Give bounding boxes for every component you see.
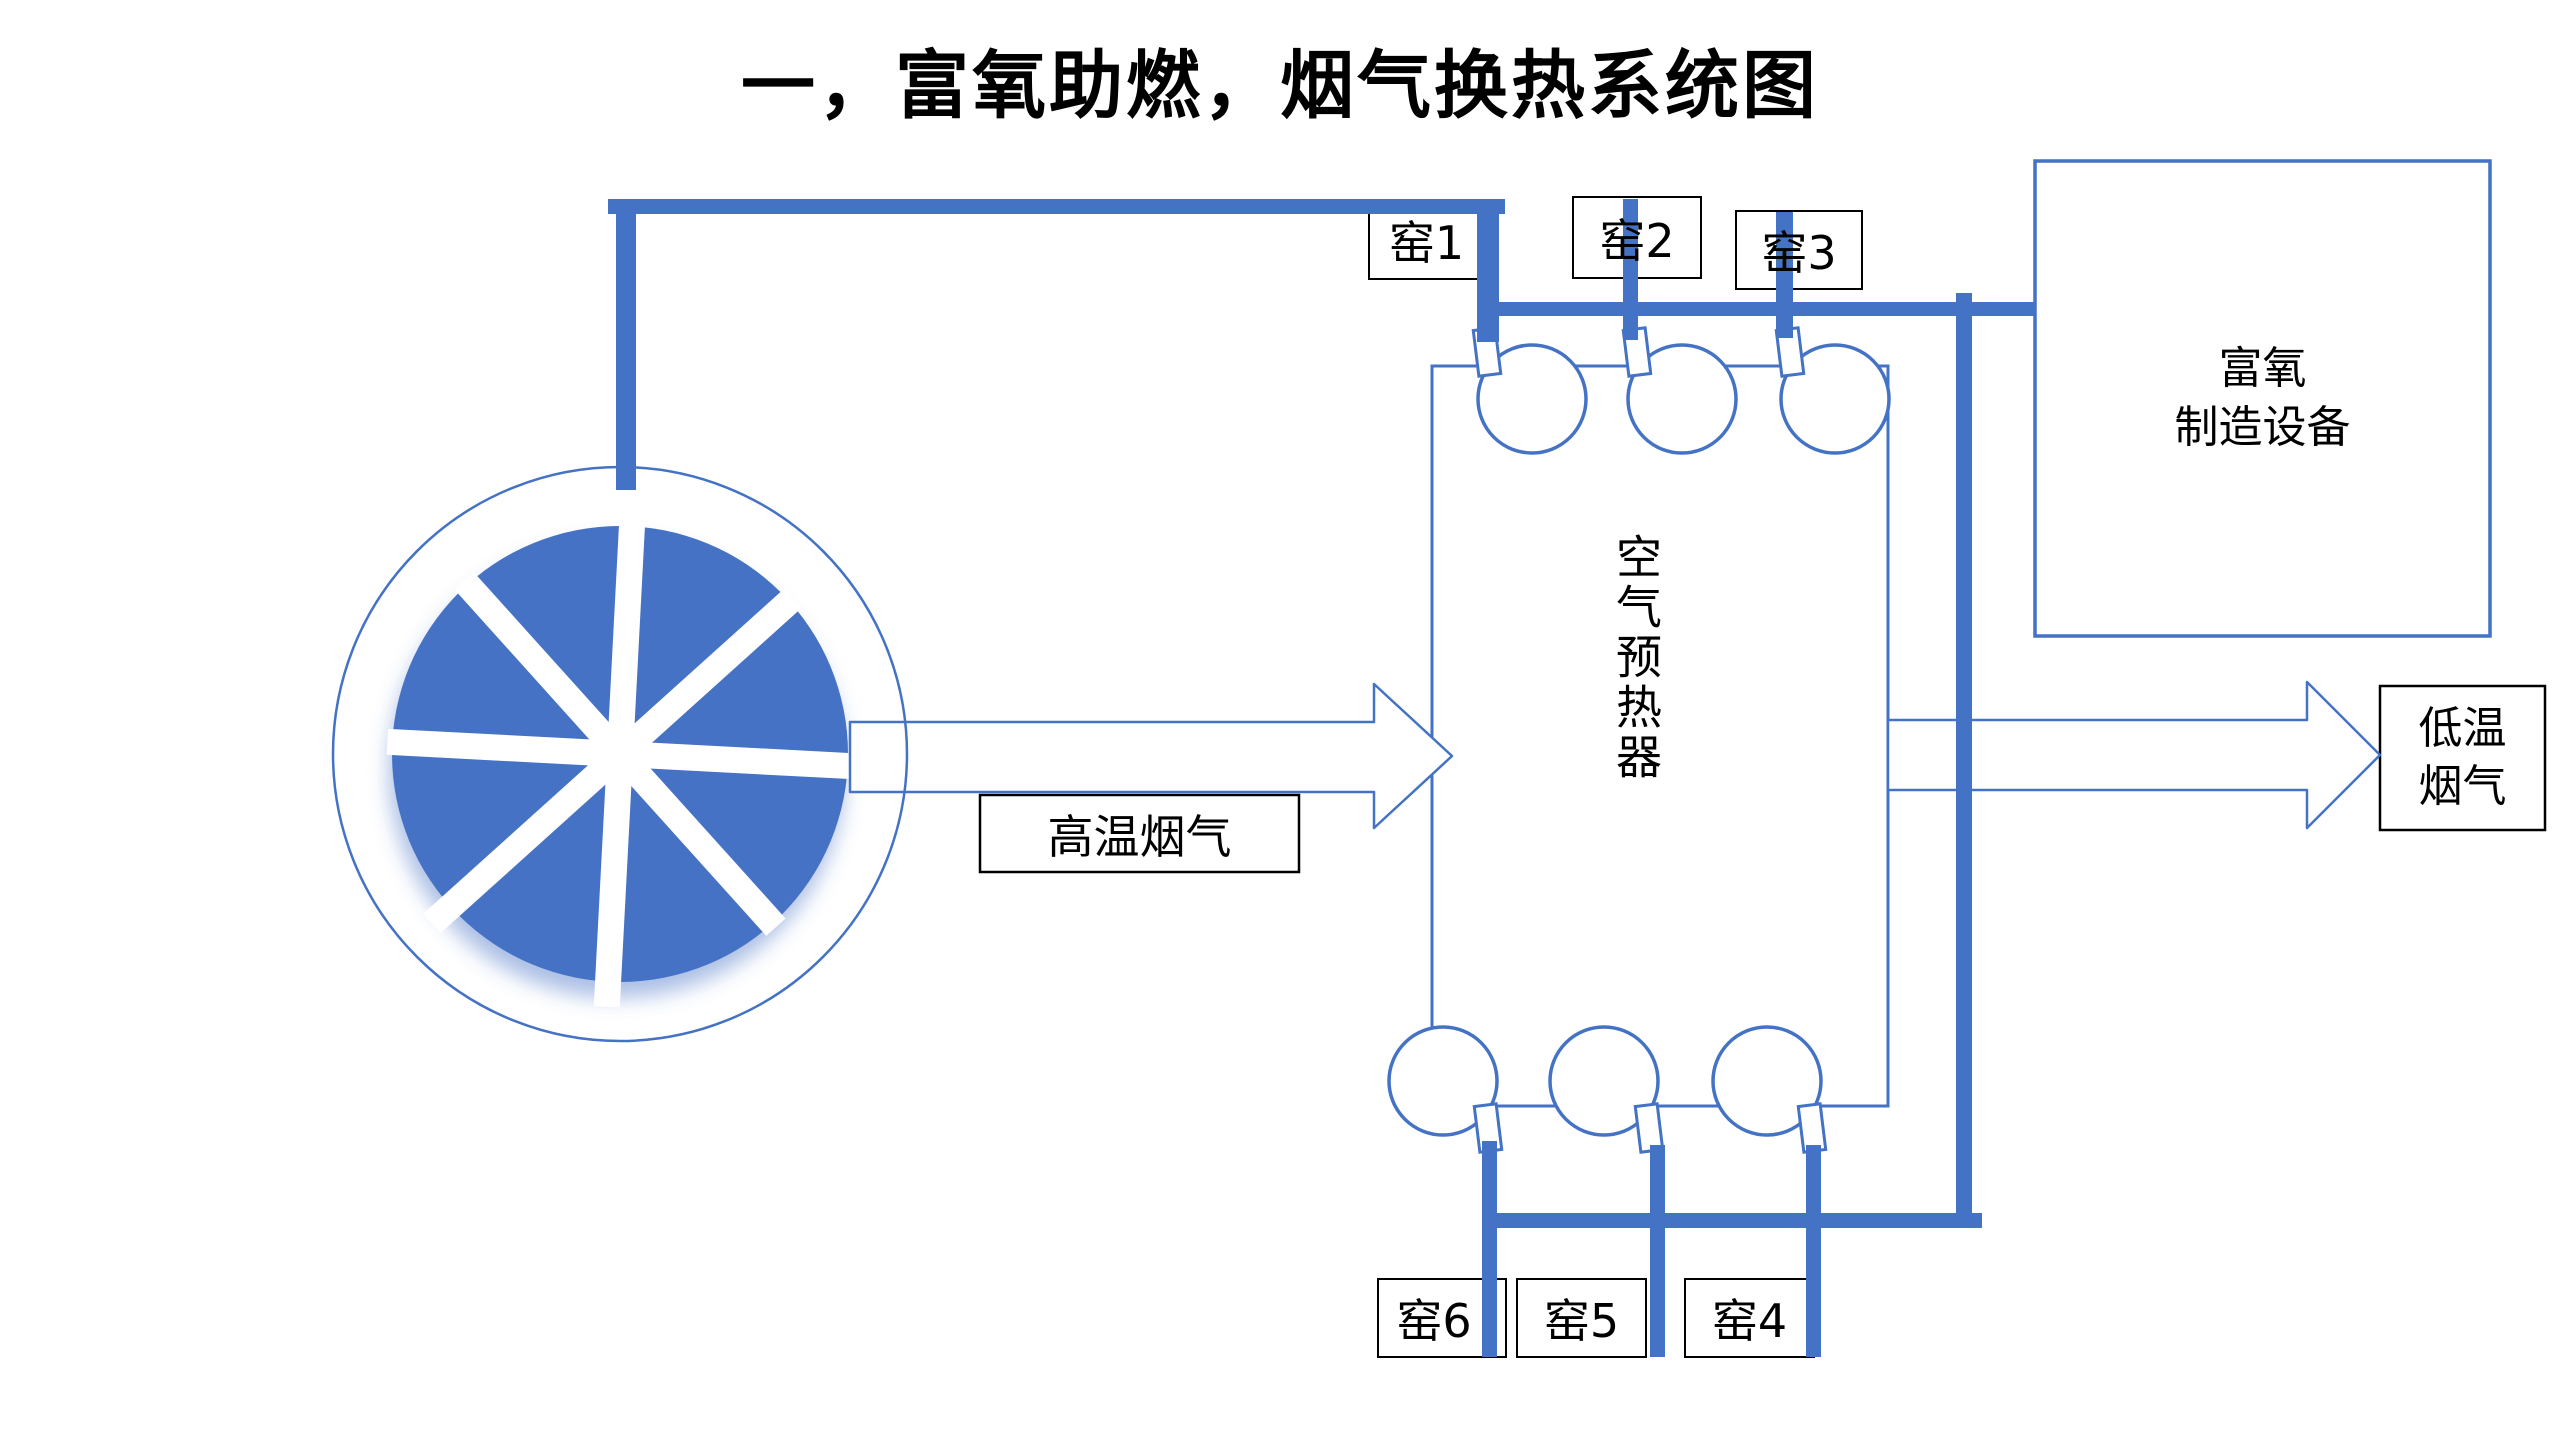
pipe-kiln5: [1650, 1145, 1665, 1357]
kiln3-label: 窑3: [1736, 211, 1862, 289]
oxygen-plant-label: 富氧 制造设备: [2035, 161, 2490, 636]
pipe-bottom-manifold: [1482, 1213, 1982, 1228]
centrifugal-fan-icon: [1623, 328, 1736, 453]
diagram-canvas: 一，富氧助燃，烟气换热系统图 窑1 窑2 窑3 窑6 窑5 窑4 高温烟气 低温…: [0, 0, 2560, 1440]
kiln1-label: 窑1: [1369, 200, 1484, 279]
pipe-oxygen-downcomer: [1956, 293, 1972, 1228]
cold-flue-gas-label: 低温 烟气: [2380, 686, 2545, 830]
oxygen-plant-line2: 制造设备: [2175, 399, 2351, 457]
centrifugal-fan-icon: [1550, 1027, 1663, 1152]
kiln4-label: 窑4: [1685, 1279, 1814, 1357]
page-title: 一，富氧助燃，烟气换热系统图: [0, 26, 2560, 133]
top-blower-fans: [1473, 328, 1889, 453]
rotary-regenerator-wheel-icon: [387, 521, 854, 1008]
oxygen-plant-line1: 富氧: [2219, 340, 2307, 398]
pipe-top-manifold: [1477, 302, 2035, 316]
air-preheater-label: 空气预热器: [1598, 525, 1674, 791]
centrifugal-fan-icon: [1389, 1027, 1502, 1152]
hot-flue-gas-label: 高温烟气: [980, 795, 1299, 872]
centrifugal-fan-icon: [1473, 328, 1586, 453]
pipe-wheel-riser: [616, 199, 636, 490]
bottom-blower-fans: [1389, 1027, 1826, 1152]
cold-flue-gas-line1: 低温: [2419, 700, 2507, 758]
kiln5-label: 窑5: [1517, 1279, 1646, 1357]
cold-flue-gas-line2: 烟气: [2419, 758, 2507, 816]
kiln6-label: 窑6: [1378, 1279, 1490, 1357]
kiln2-label: 窑2: [1573, 197, 1701, 278]
centrifugal-fan-icon: [1713, 1027, 1826, 1152]
centrifugal-fan-icon: [1776, 328, 1889, 453]
